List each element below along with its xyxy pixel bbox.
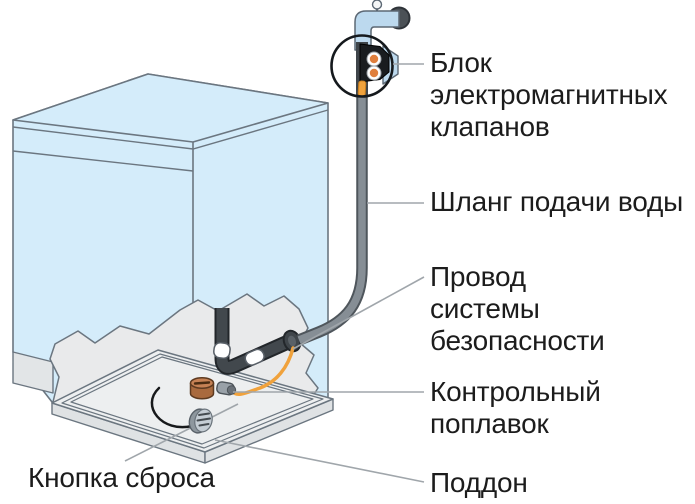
valve-port-1-core [370, 55, 378, 63]
float-slot [195, 383, 209, 384]
label-control-float: Контрольный поплавок [430, 376, 620, 440]
label-supply-hose: Шланг подачи воды [430, 186, 683, 218]
label-valve-block: Блок электромагнитных клапанов [430, 47, 682, 143]
label-reset-button: Кнопка сброса [28, 462, 215, 494]
label-safety-wire: Провод системы безопасности [430, 261, 630, 357]
diagram: Блок электромагнитных клапанов Шланг под… [0, 0, 695, 504]
leader-drip-pan [215, 440, 424, 482]
faucet-handle-ball [373, 0, 382, 9]
label-drip-pan: Поддон [430, 467, 528, 499]
valve-wire-stub [358, 81, 366, 96]
valve-port-2-core [370, 69, 378, 77]
float-connector-tip [227, 386, 235, 394]
hose-coupling-vertical [213, 342, 231, 359]
